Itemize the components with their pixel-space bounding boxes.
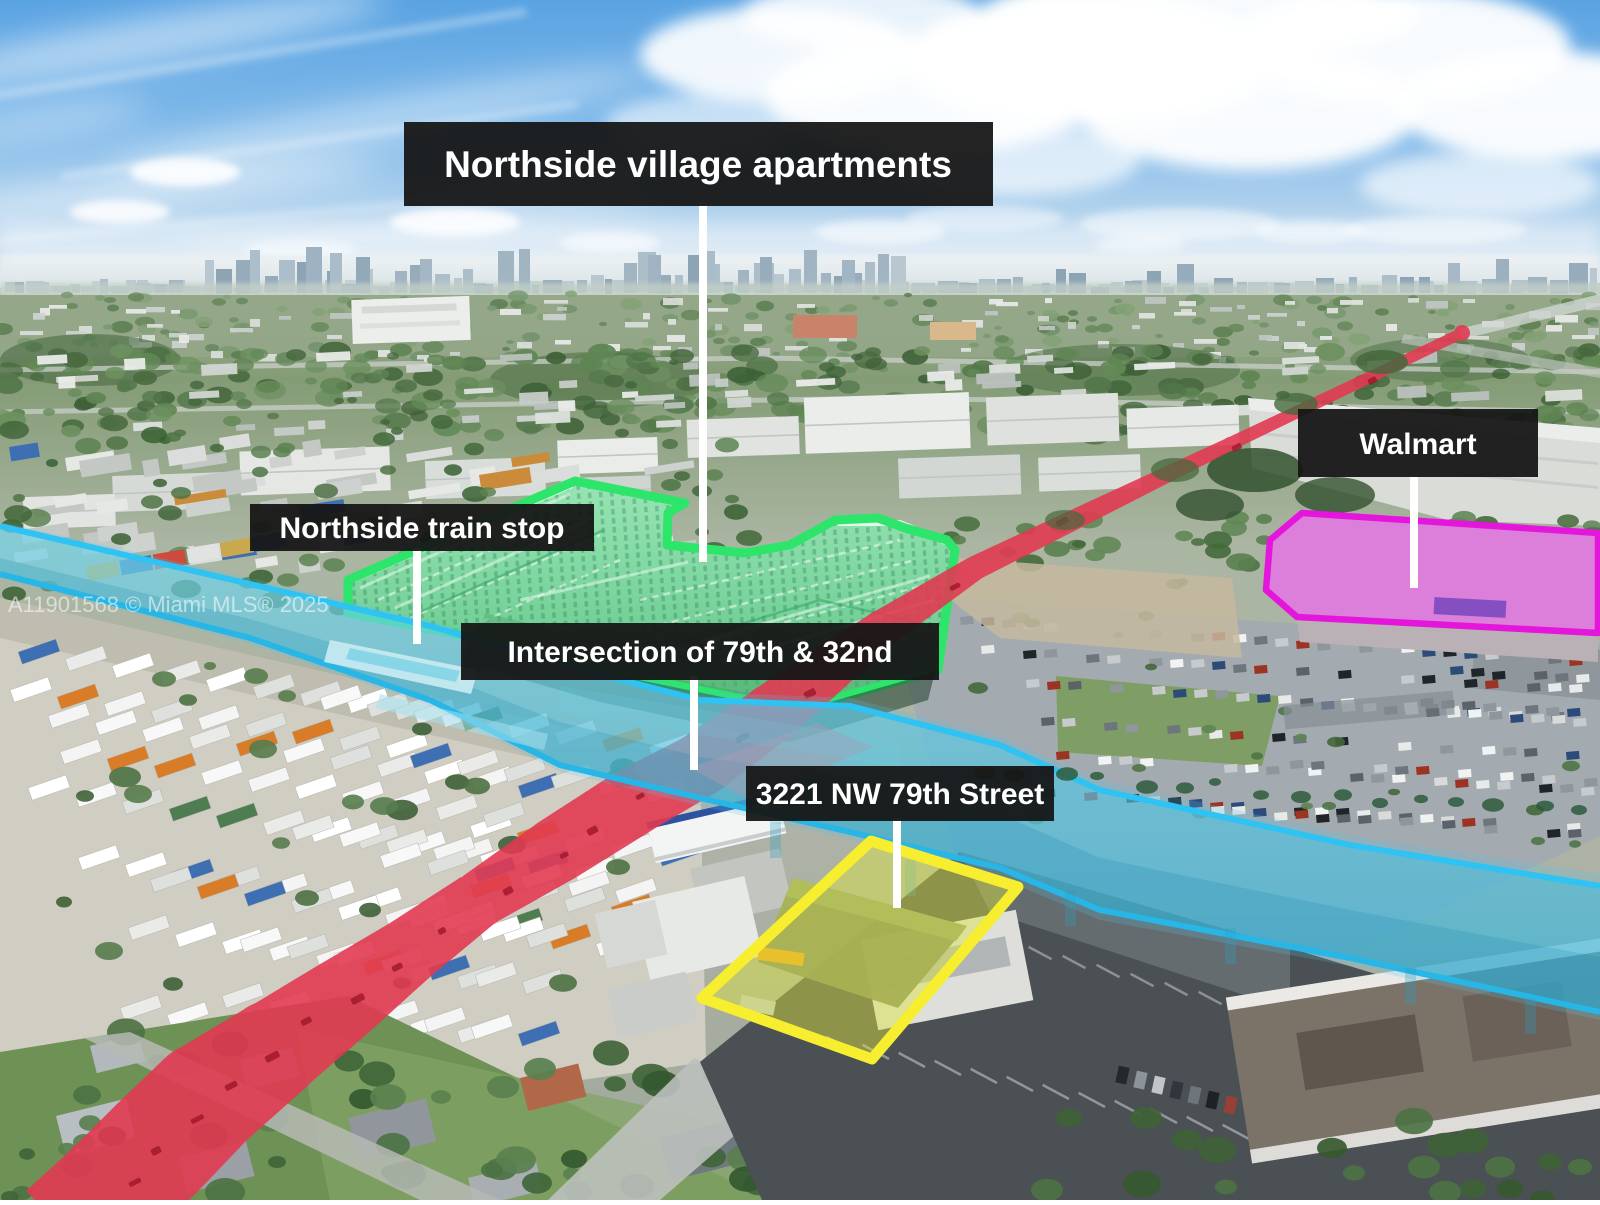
svg-text:Intersection of 79th & 32nd: Intersection of 79th & 32nd	[507, 636, 892, 669]
svg-text:Walmart: Walmart	[1359, 428, 1476, 461]
svg-text:3221 NW 79th Street: 3221 NW 79th Street	[756, 778, 1044, 811]
svg-text:A11901568 © Miami MLS® 2025: A11901568 © Miami MLS® 2025	[8, 592, 329, 617]
svg-text:Northside train stop: Northside train stop	[279, 512, 564, 545]
svg-text:Northside village apartments: Northside village apartments	[444, 144, 952, 185]
